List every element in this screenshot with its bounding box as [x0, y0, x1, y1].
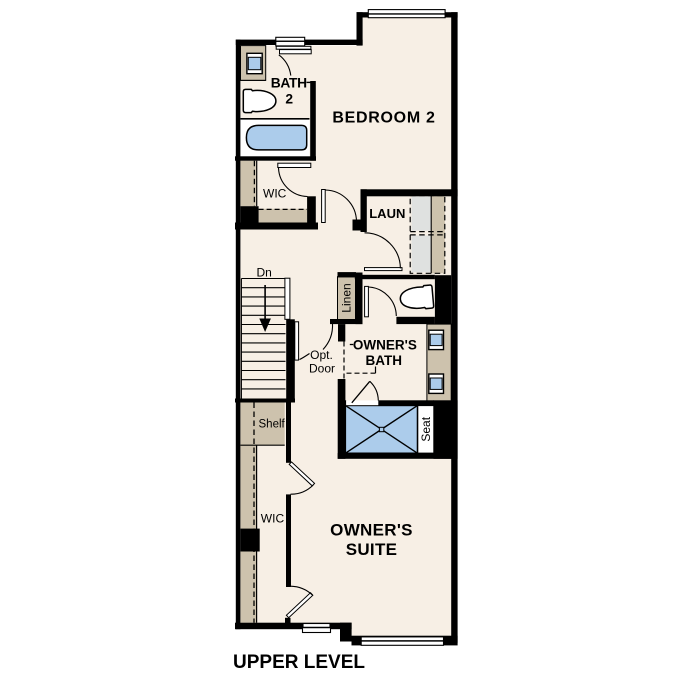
- svg-text:2: 2: [285, 91, 293, 106]
- svg-text:UPPER LEVEL: UPPER LEVEL: [233, 652, 365, 673]
- svg-text:BATH: BATH: [366, 353, 403, 368]
- svg-text:LAUN: LAUN: [369, 206, 405, 221]
- svg-text:BEDROOM 2: BEDROOM 2: [332, 109, 435, 126]
- svg-text:OWNER'S: OWNER'S: [330, 520, 413, 539]
- svg-text:Opt.: Opt.: [310, 348, 333, 362]
- svg-text:Shelf: Shelf: [259, 419, 286, 431]
- svg-text:Door: Door: [309, 362, 335, 376]
- svg-text:Seat: Seat: [419, 416, 433, 441]
- svg-text:Dn: Dn: [257, 266, 272, 280]
- svg-text:SUITE: SUITE: [346, 540, 398, 559]
- svg-text:WIC: WIC: [261, 512, 285, 526]
- svg-text:BATH: BATH: [271, 76, 307, 91]
- svg-text:OWNER'S: OWNER'S: [353, 337, 417, 352]
- svg-text:Linen: Linen: [340, 283, 354, 312]
- svg-text:WIC: WIC: [263, 186, 287, 200]
